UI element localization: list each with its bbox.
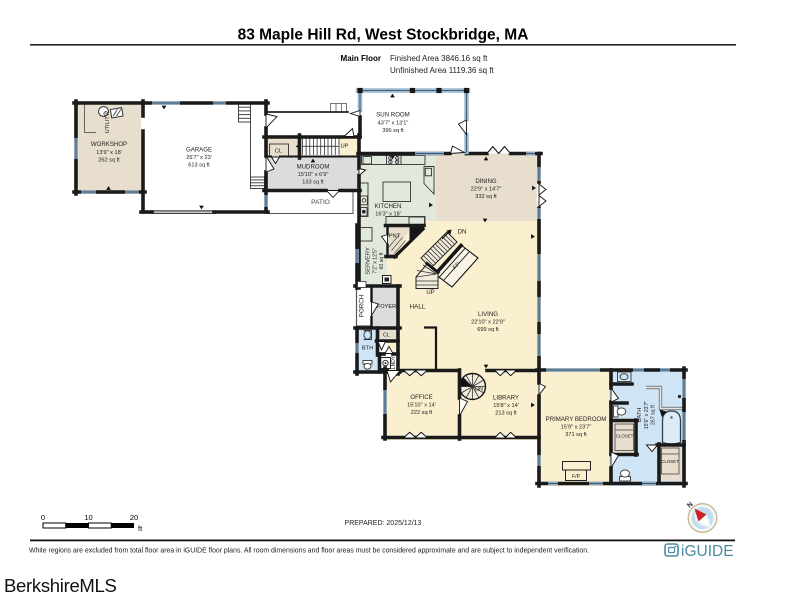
svg-text:UTILITY: UTILITY <box>105 112 111 133</box>
svg-text:15'9" x 23'7": 15'9" x 23'7" <box>561 425 592 431</box>
svg-text:Finished Area 3846.16 sq ft: Finished Area 3846.16 sq ft <box>390 54 488 63</box>
svg-text:699 sq ft: 699 sq ft <box>477 327 499 333</box>
svg-text:43'7" x 13'1": 43'7" x 13'1" <box>378 121 409 127</box>
svg-text:371 sq ft: 371 sq ft <box>565 432 587 438</box>
svg-text:BerkshireMLS: BerkshireMLS <box>4 575 117 596</box>
svg-text:MUDROOM: MUDROOM <box>297 164 330 171</box>
svg-text:PRIMARY BEDROOM: PRIMARY BEDROOM <box>546 416 607 423</box>
svg-text:222 sq ft: 222 sq ft <box>411 410 433 416</box>
svg-text:White regions are excluded fro: White regions are excluded from total fl… <box>29 548 589 555</box>
svg-text:10: 10 <box>84 513 92 522</box>
svg-text:PNT: PNT <box>389 234 401 240</box>
svg-text:267 sq ft: 267 sq ft <box>651 404 657 424</box>
svg-text:iGUIDE: iGUIDE <box>681 543 734 560</box>
svg-text:CLOSET: CLOSET <box>661 459 679 464</box>
svg-text:Main Floor: Main Floor <box>341 54 381 63</box>
svg-text:WORKSHOP: WORKSHOP <box>91 141 127 148</box>
svg-text:262 sq ft: 262 sq ft <box>98 158 120 164</box>
svg-text:15'6" x 23'7": 15'6" x 23'7" <box>644 401 650 430</box>
svg-text:CL: CL <box>383 333 390 339</box>
svg-text:CLOSET: CLOSET <box>616 434 634 439</box>
svg-text:CL: CL <box>275 149 283 155</box>
svg-text:20: 20 <box>130 513 138 522</box>
svg-text:PATIO: PATIO <box>311 199 330 206</box>
svg-text:7'2" x 12'5": 7'2" x 12'5" <box>373 248 379 274</box>
svg-text:15'8" x 14': 15'8" x 14' <box>493 403 519 409</box>
svg-text:DN: DN <box>475 387 483 393</box>
svg-text:22'9" x 14'7": 22'9" x 14'7" <box>471 187 502 193</box>
svg-text:SERVERY: SERVERY <box>366 247 372 275</box>
svg-text:26'7" x 23': 26'7" x 23' <box>186 155 212 161</box>
svg-text:OFFICE: OFFICE <box>410 394 432 401</box>
svg-text:13'9" x 18': 13'9" x 18' <box>96 150 122 156</box>
svg-text:SUN ROOM: SUN ROOM <box>376 112 410 119</box>
svg-text:15'10" x 14': 15'10" x 14' <box>407 403 436 409</box>
svg-text:15'10" x 6'9": 15'10" x 6'9" <box>298 172 329 178</box>
svg-text:FOYER: FOYER <box>377 304 396 310</box>
svg-text:LIVING: LIVING <box>478 311 498 318</box>
svg-text:PORCH: PORCH <box>359 295 366 317</box>
svg-text:KITCHEN: KITCHEN <box>375 203 402 210</box>
svg-text:DN: DN <box>458 230 467 236</box>
svg-text:UP: UP <box>426 290 434 296</box>
svg-text:LNDY: LNDY <box>391 355 397 369</box>
svg-text:UP: UP <box>340 144 348 150</box>
svg-text:BTH: BTH <box>362 346 374 352</box>
svg-text:332 sq ft: 332 sq ft <box>475 194 497 200</box>
svg-text:F/P: F/P <box>572 474 581 480</box>
svg-text:BATH: BATH <box>637 408 643 423</box>
svg-text:DINING: DINING <box>475 178 497 185</box>
svg-text:396 sq ft: 396 sq ft <box>382 128 404 134</box>
svg-text:213 sq ft: 213 sq ft <box>495 411 517 417</box>
svg-text:83 Maple Hill Rd, West Stockbr: 83 Maple Hill Rd, West Stockbridge, MA <box>238 27 529 44</box>
svg-text:Unfinished Area 1119.36 sq ft: Unfinished Area 1119.36 sq ft <box>390 66 495 75</box>
svg-text:60 sq ft: 60 sq ft <box>379 252 385 270</box>
svg-text:PREPARED: 2025/12/13: PREPARED: 2025/12/13 <box>345 520 422 527</box>
svg-text:0: 0 <box>41 513 45 522</box>
svg-text:22'10" x 22'9": 22'10" x 22'9" <box>471 320 505 326</box>
svg-text:613 sq ft: 613 sq ft <box>188 163 210 169</box>
svg-text:16'3" x 18': 16'3" x 18' <box>375 212 401 218</box>
svg-text:133 sq ft: 133 sq ft <box>302 180 324 186</box>
svg-text:HALL: HALL <box>410 304 426 311</box>
svg-text:LIBRARY: LIBRARY <box>493 395 519 402</box>
svg-text:GARAGE: GARAGE <box>186 147 212 154</box>
